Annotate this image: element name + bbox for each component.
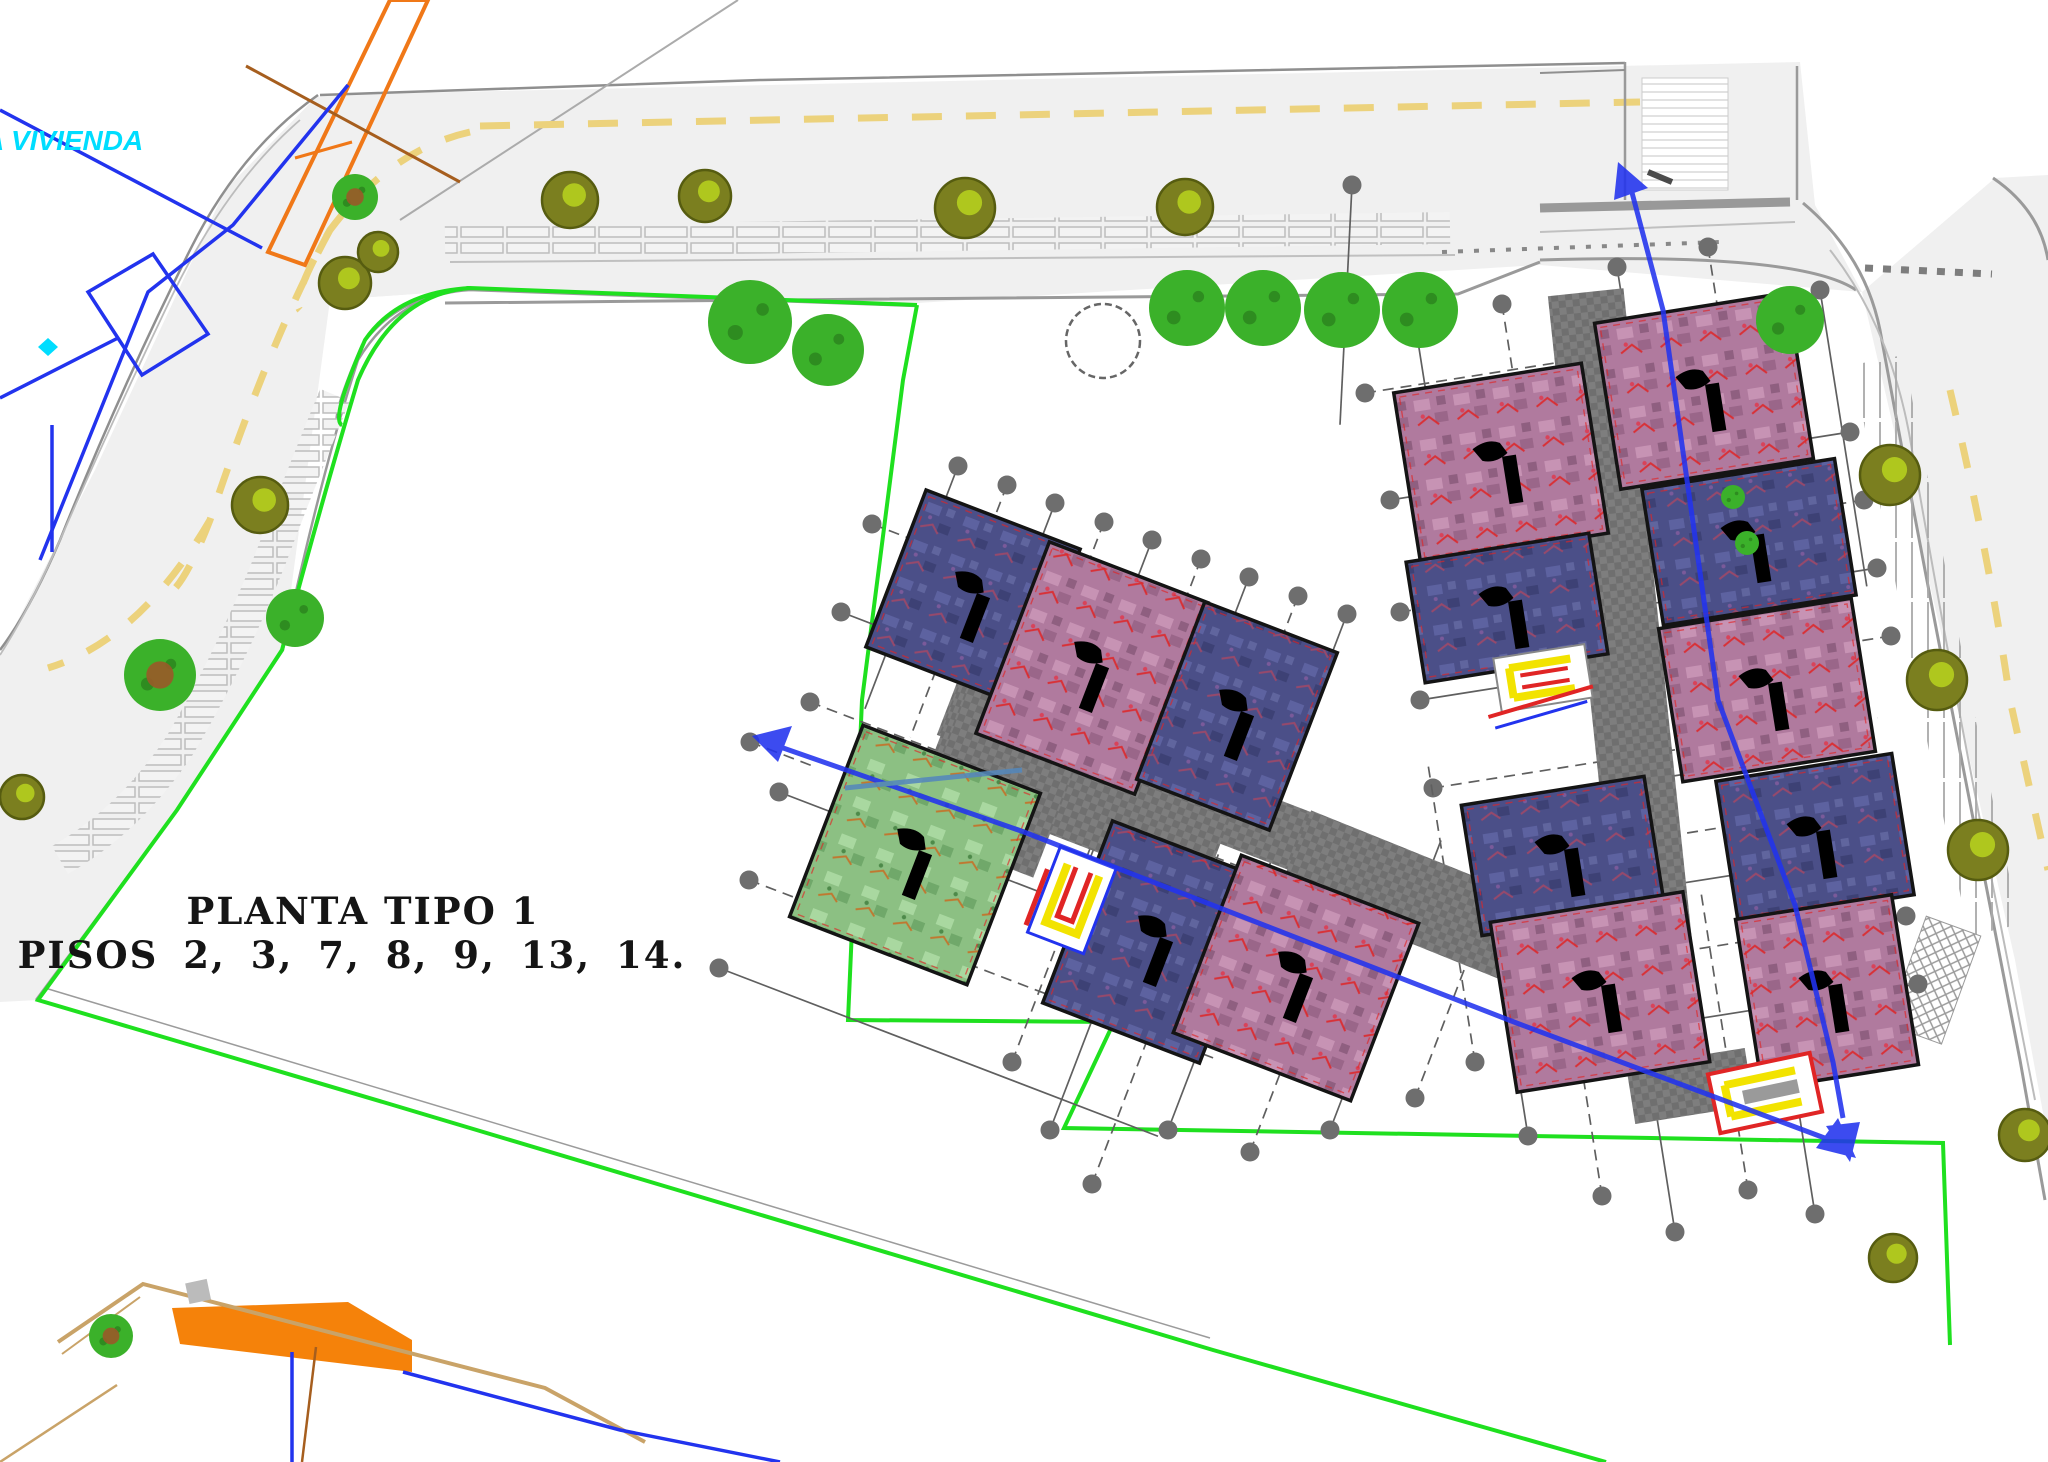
grid-bubble [1356, 384, 1375, 403]
tan-roof-line3 [0, 1385, 117, 1462]
tree-green-crown [708, 280, 792, 364]
grid-bubble [1806, 1205, 1825, 1224]
grid-bubble [1882, 627, 1901, 646]
grid-bubble [1897, 907, 1916, 926]
tree-green-speckle [1167, 311, 1181, 325]
tree-olive-highlight [1970, 832, 1995, 857]
tree-green-speckle [1741, 544, 1745, 548]
grid-bubble [1381, 491, 1400, 510]
grid-bubble [1143, 531, 1162, 550]
grid-bubble [1466, 1053, 1485, 1072]
tree-green-crown [1149, 270, 1225, 346]
grid-bubble [740, 871, 759, 890]
tree-green-crown [1225, 270, 1301, 346]
grid-bubble [1699, 238, 1718, 257]
tree-olive-icon [542, 172, 598, 228]
tree-green-icon [792, 314, 864, 386]
grid-bubble [1868, 559, 1887, 578]
tree-green-speckle [728, 325, 743, 340]
tree-olive-highlight [373, 240, 390, 257]
tree-green-speckle [1243, 311, 1257, 325]
tree-green-icon [1304, 272, 1380, 348]
grid-bubble [710, 959, 729, 978]
grid-bubble [1159, 1121, 1178, 1140]
tree-olive-icon [1869, 1234, 1917, 1282]
building-block-tower-13 [1659, 598, 1876, 782]
grid-bubble [832, 603, 851, 622]
building-block-tower-10 [1490, 892, 1710, 1092]
tree-green-icon [1735, 531, 1759, 555]
grid-bubble [1391, 603, 1410, 622]
parcel-line-6 [403, 1372, 780, 1462]
tree-olive-highlight [1177, 190, 1201, 214]
grid-bubble [1321, 1121, 1340, 1140]
tree-olive-icon [935, 178, 995, 238]
plan-title: PLANTA TIPO 1 [187, 889, 540, 933]
grid-bubble [1493, 295, 1512, 314]
tree-green-speckle [833, 334, 844, 345]
tree-olive-highlight [698, 180, 720, 202]
tree-green-speckle [1795, 305, 1805, 315]
plan-floors-subtitle: PISOS 2, 3, 7, 8, 9, 13, 14. [18, 933, 687, 977]
tree-olive-icon [1999, 1109, 2048, 1161]
grid-bubble [1241, 1143, 1260, 1162]
tree-trunk-center [103, 1328, 120, 1345]
tree-green-crown [1304, 272, 1380, 348]
tree-green-icon [1149, 270, 1225, 346]
tree-olive-highlight [562, 183, 586, 207]
tree-green-icon [1225, 270, 1301, 346]
tree-olive-highlight [16, 784, 34, 802]
grid-bubble [1841, 423, 1860, 442]
grid-bubble [1338, 605, 1357, 624]
tree-trunk-center [346, 188, 363, 205]
grid-bubble [1739, 1181, 1758, 1200]
cyan-survey-diamond [38, 338, 58, 356]
grid-bubble [1666, 1223, 1685, 1242]
grid-bubble [1003, 1053, 1022, 1072]
site-plan-canvas: A VIVIENDA PLANTA TIPO 1 PISOS 2, 3, 7, … [0, 0, 2048, 1462]
tree-olive-highlight [1882, 457, 1907, 482]
grid-bubble [1192, 550, 1211, 569]
tree-olive-icon [679, 170, 731, 222]
parcel-line-3 [0, 338, 118, 398]
tree-green-crown [792, 314, 864, 386]
tree-green-icon [89, 1314, 133, 1358]
site-plan-svg: A VIVIENDA PLANTA TIPO 1 PISOS 2, 3, 7, … [0, 0, 2048, 1462]
tree-green-speckle [1426, 293, 1437, 304]
building-block-tower-7 [1394, 363, 1609, 563]
tree-green-crown [1756, 286, 1824, 354]
tree-olive-highlight [338, 267, 360, 289]
tree-olive-icon [0, 775, 44, 819]
tree-green-speckle [1772, 322, 1784, 334]
tree-green-speckle [1322, 313, 1336, 327]
small-gray-shed [185, 1279, 211, 1304]
grid-bubble [1041, 1121, 1060, 1140]
grid-bubble [1083, 1175, 1102, 1194]
survey-circle [1066, 304, 1140, 378]
tree-green-icon [1721, 485, 1745, 509]
grid-bubble [1343, 176, 1362, 195]
tree-green-speckle [756, 303, 769, 316]
grid-bubble [1289, 587, 1308, 606]
tree-green-icon [1382, 272, 1458, 348]
grid-bubble [1519, 1127, 1538, 1146]
street-label-vivienda: A VIVIENDA [0, 125, 143, 156]
tree-olive-highlight [957, 190, 982, 215]
grid-bubble [1240, 568, 1259, 587]
building-block-tower-15 [1736, 895, 1919, 1090]
tree-trunk-center [146, 661, 173, 688]
tree-green-icon [1756, 286, 1824, 354]
tree-green-speckle [1727, 498, 1731, 502]
tree-olive-icon [1157, 179, 1213, 235]
grid-bubble [1046, 494, 1065, 513]
grid-bubble [1411, 691, 1430, 710]
tree-green-icon [266, 589, 324, 647]
grid-bubble [770, 783, 789, 802]
tree-olive-icon [358, 232, 398, 272]
tree-green-crown [266, 589, 324, 647]
grid-bubble [1406, 1089, 1425, 1108]
tree-green-speckle [299, 605, 308, 614]
tree-green-crown [1721, 485, 1745, 509]
tree-green-speckle [280, 620, 290, 630]
tree-olive-icon [232, 477, 288, 533]
tree-olive-highlight [2018, 1119, 2040, 1141]
tree-green-icon [332, 174, 378, 220]
grid-bubble [1095, 513, 1114, 532]
tree-green-crown [1735, 531, 1759, 555]
tree-green-speckle [1193, 291, 1204, 302]
brown-post-line [302, 1347, 316, 1462]
tree-olive-highlight [1929, 662, 1954, 687]
top-road-median-dark [1540, 202, 1790, 208]
grid-bubble [863, 515, 882, 534]
tree-green-crown [1382, 272, 1458, 348]
tree-olive-highlight [1887, 1244, 1907, 1264]
tree-olive-icon [1907, 650, 1967, 710]
grid-bubble [1608, 258, 1627, 277]
grid-bubble [801, 693, 820, 712]
tree-green-icon [124, 639, 196, 711]
grid-bubble [1909, 975, 1928, 994]
tree-green-speckle [1400, 313, 1414, 327]
boundary-gray-shadow [45, 988, 1210, 1338]
tower-13-footprint [1659, 598, 1876, 782]
tree-green-speckle [1749, 538, 1753, 542]
tree-olive-icon [1948, 820, 2008, 880]
tree-olive-icon [1860, 445, 1920, 505]
tree-green-speckle [1735, 492, 1739, 496]
grid-bubble [998, 476, 1017, 495]
tree-olive-highlight [252, 488, 276, 512]
tree-green-speckle [809, 353, 822, 366]
tree-green-speckle [1269, 291, 1280, 302]
tree-green-speckle [1348, 293, 1359, 304]
grid-bubble [949, 457, 968, 476]
tree-green-icon [708, 280, 792, 364]
grid-bubble [1593, 1187, 1612, 1206]
